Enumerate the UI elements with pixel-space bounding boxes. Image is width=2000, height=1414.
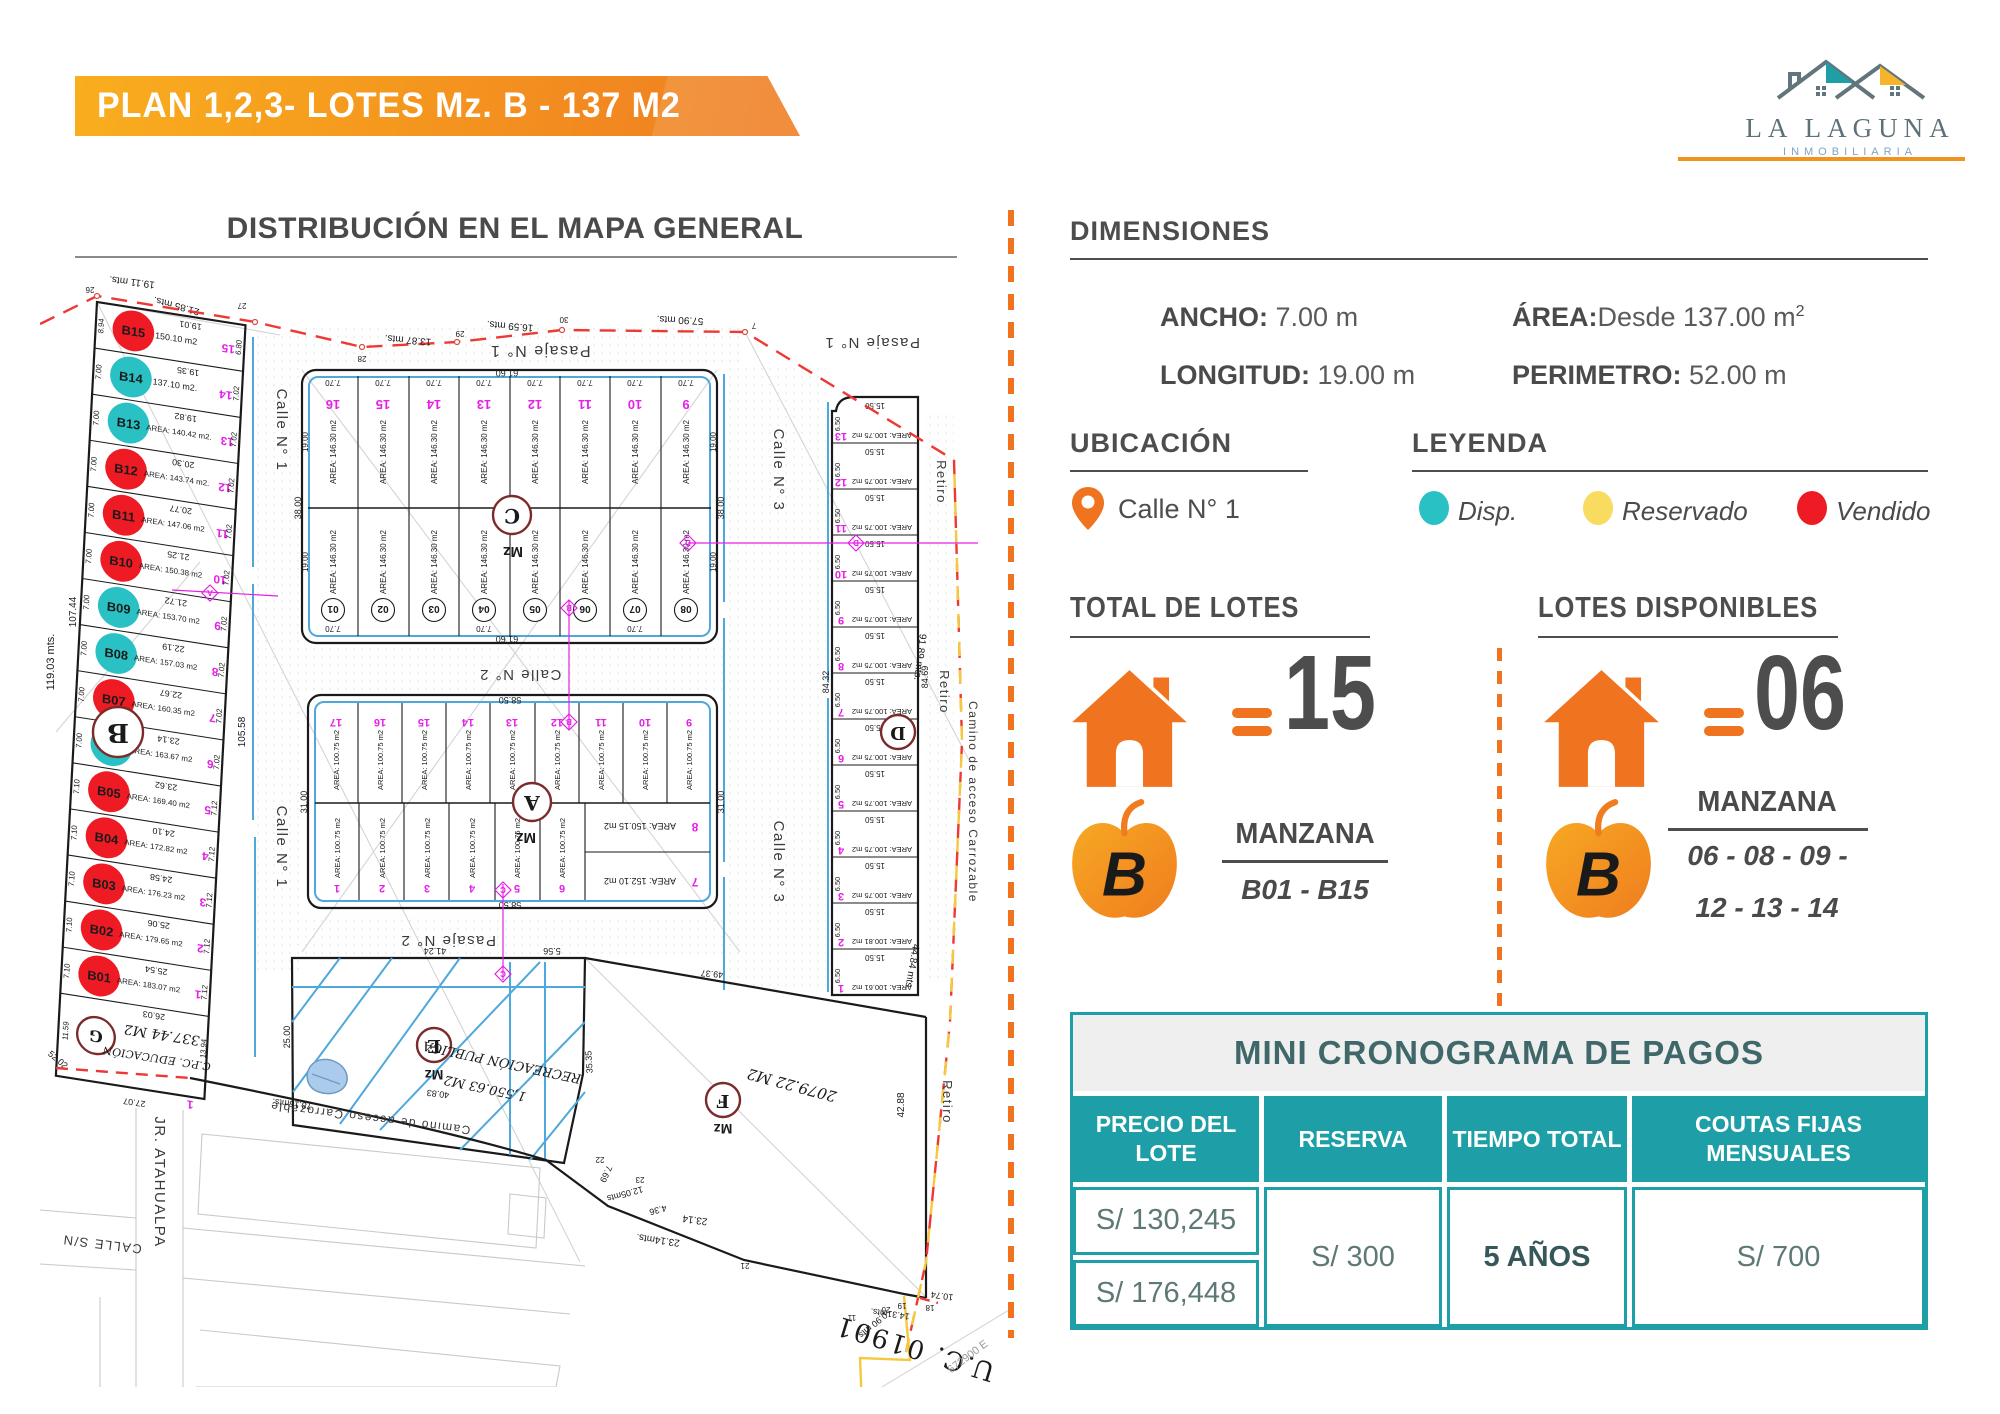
svg-text:19.82: 19.82 <box>174 411 197 424</box>
svg-text:14: 14 <box>461 716 474 728</box>
svg-text:AREA: 100.75 m2: AREA: 100.75 m2 <box>852 431 912 440</box>
svg-text:7.70: 7.70 <box>627 624 643 633</box>
svg-text:19.00: 19.00 <box>301 431 310 452</box>
svg-text:12: 12 <box>528 397 542 412</box>
svg-text:6.50: 6.50 <box>833 417 842 432</box>
svg-text:Calle N° 3: Calle N° 3 <box>770 429 787 512</box>
svg-text:3: 3 <box>424 882 430 894</box>
svg-text:6.50: 6.50 <box>833 693 842 708</box>
ubicacion-value: Calle N° 1 <box>1118 494 1240 525</box>
svg-text:Calle N° 1: Calle N° 1 <box>273 389 290 472</box>
svg-text:26.03: 26.03 <box>142 1009 165 1022</box>
reservado-dot <box>1582 490 1614 526</box>
svg-text:10: 10 <box>628 397 642 412</box>
svg-text:7.02: 7.02 <box>231 385 241 401</box>
lot-row: B13AREA: 140.42 m2.19.82137.007.02 <box>91 397 240 460</box>
reserva-value: S/ 300 <box>1264 1187 1442 1327</box>
svg-text:61.60: 61.60 <box>496 634 519 644</box>
svg-text:AREA: 100.75 m2: AREA: 100.75 m2 <box>852 569 912 578</box>
lot-row: B04AREA: 172.82 m224.1047.107.12 <box>69 812 218 875</box>
svg-text:Mz: Mz <box>516 829 536 846</box>
page-title: PLAN 1,2,3- LOTES Mz. B - 137 M2 <box>97 86 681 126</box>
svg-text:01: 01 <box>327 603 339 614</box>
svg-text:6.50: 6.50 <box>833 509 842 524</box>
svg-text:49.37: 49.37 <box>700 968 723 980</box>
svg-text:5: 5 <box>514 882 520 894</box>
svg-text:AREA: 169.40 m2: AREA: 169.40 m2 <box>126 792 190 811</box>
svg-text:7.70: 7.70 <box>476 378 492 387</box>
vendido-dot <box>1796 490 1828 526</box>
dim-label: 119.03 mts. <box>45 634 57 691</box>
svg-text:AREA: 146.30 m2: AREA: 146.30 m2 <box>329 419 338 484</box>
house-icon <box>1540 654 1665 804</box>
d-row: 15.508AREA: 100.75 m26.50 <box>833 631 912 672</box>
svg-text:08: 08 <box>680 603 692 614</box>
manzana-right-label: MANZANA <box>1658 786 1877 819</box>
svg-text:27: 27 <box>237 301 246 310</box>
svg-text:22.67: 22.67 <box>160 687 183 700</box>
ubicacion-heading: UBICACIÓN <box>1070 428 1232 459</box>
svg-text:AREA: 146.30 m2: AREA: 146.30 m2 <box>682 419 691 484</box>
leyenda-heading: LEYENDA <box>1412 428 1548 459</box>
svg-text:7.70: 7.70 <box>627 378 643 387</box>
svg-text:23.14mts.: 23.14mts. <box>636 1231 681 1248</box>
svg-text:17: 17 <box>330 716 342 728</box>
svg-text:31.00: 31.00 <box>299 791 309 814</box>
d-row: 15.507AREA: 100.75 m26.50 <box>833 677 912 718</box>
svg-text:35.35: 35.35 <box>583 1050 594 1073</box>
svg-text:7.00: 7.00 <box>82 594 92 611</box>
svg-text:16: 16 <box>326 397 340 412</box>
logo-underline <box>1678 157 1965 161</box>
cronograma-title: MINI CRONOGRAMA DE PAGOS <box>1073 1015 1925 1091</box>
precio-2: S/ 176,448 <box>1073 1260 1259 1328</box>
svg-text:7.00: 7.00 <box>84 547 94 564</box>
svg-text:38.00: 38.00 <box>293 497 303 520</box>
svg-text:13: 13 <box>477 397 491 412</box>
lotes-disponibles-heading: LOTES DISPONIBLES <box>1538 592 1818 625</box>
lot-row: B12AREA: 143.74 m2.20.30127.007.02 <box>88 443 237 506</box>
svg-text:21: 21 <box>740 1261 749 1270</box>
area-spec: ÁREA:Desde 137.00 m2 <box>1512 302 1805 333</box>
house-icon <box>1068 654 1193 804</box>
svg-text:2: 2 <box>379 882 385 894</box>
svg-text:AREA: 100.75 m2: AREA: 100.75 m2 <box>852 523 912 532</box>
svg-text:7.12: 7.12 <box>207 846 217 862</box>
svg-text:15.50: 15.50 <box>864 677 885 686</box>
area-value: Desde 137.00 m <box>1598 302 1796 332</box>
svg-text:12.05mts: 12.05mts <box>605 1184 644 1203</box>
dimensiones-underline <box>1070 258 1928 260</box>
svg-text:15.50: 15.50 <box>864 447 885 456</box>
cronograma-table: MINI CRONOGRAMA DE PAGOS PRECIO DEL LOTE… <box>1070 1012 1928 1330</box>
svg-text:7: 7 <box>751 321 756 330</box>
svg-text:20.30: 20.30 <box>172 457 195 470</box>
svg-text:21.72: 21.72 <box>164 595 187 608</box>
precio-1: S/ 130,245 <box>1073 1187 1259 1255</box>
svg-text:AREA: 146.30 m2: AREA: 146.30 m2 <box>430 419 439 484</box>
svg-text:Mz: Mz <box>425 1067 444 1083</box>
svg-text:23: 23 <box>635 1175 644 1184</box>
svg-text:15.50: 15.50 <box>864 861 885 870</box>
houses-logo-icon <box>1750 48 1950 106</box>
svg-text:21.25: 21.25 <box>167 549 190 562</box>
svg-text:15.50: 15.50 <box>864 493 885 502</box>
d-row: 15.5011AREA: 100.75 m26.50 <box>833 493 912 534</box>
svg-text:AREA: 150.38 m2: AREA: 150.38 m2 <box>139 561 203 580</box>
svg-text:AREA: 176.23 m2: AREA: 176.23 m2 <box>122 884 186 903</box>
svg-text:18: 18 <box>925 1303 934 1312</box>
svg-text:20: 20 <box>881 1305 890 1314</box>
svg-text:AREA: 146.30 m2: AREA: 146.30 m2 <box>480 529 489 594</box>
svg-text:15.50: 15.50 <box>864 401 885 410</box>
svg-text:8.94: 8.94 <box>96 317 106 334</box>
svg-text:25.54: 25.54 <box>145 964 168 977</box>
svg-text:1: 1 <box>186 1097 194 1111</box>
d-row: 15.504AREA: 100.75 m26.50 <box>833 815 912 856</box>
svg-text:D: D <box>890 722 906 743</box>
svg-text:15.50: 15.50 <box>864 585 885 594</box>
d-row: 15.505AREA: 100.75 m26.50 <box>833 769 912 810</box>
company-logo: LA LAGUNA INMOBILIARIA <box>1735 48 1965 158</box>
d-row: 15.501AREA: 100.61 m26.50 <box>833 953 912 994</box>
disponible-dot <box>1418 490 1450 526</box>
svg-text:AREA: 100.75 m2: AREA: 100.75 m2 <box>553 730 562 790</box>
svg-text:9: 9 <box>682 397 689 412</box>
map-section-title: DISTRIBUCIÓN EN EL MAPA GENERAL <box>75 212 955 246</box>
d-row: 15.5012AREA: 100.75 m26.50 <box>833 447 912 488</box>
svg-text:19.00: 19.00 <box>301 551 310 572</box>
svg-text:AREA: 183.07 m2: AREA: 183.07 m2 <box>117 976 181 995</box>
svg-text:20.77: 20.77 <box>169 503 192 516</box>
svg-text:6.50: 6.50 <box>833 555 842 570</box>
svg-text:AREA: 143.74 m2.: AREA: 143.74 m2. <box>144 469 210 488</box>
lot-row: B03AREA: 176.23 m224.5837.107.12 <box>66 858 215 921</box>
equals-sign <box>1232 700 1272 744</box>
svg-text:AREA: 100.75 m2: AREA: 100.75 m2 <box>464 730 473 790</box>
totals-divider <box>1497 648 1502 1040</box>
svg-text:6.50: 6.50 <box>833 831 842 846</box>
d-row: 15.502AREA: 100.81 m26.50 <box>833 907 912 948</box>
manzana-right-line1: 06 - 08 - 09 - <box>1640 840 1895 872</box>
svg-text:AREA: 146.30 m2: AREA: 146.30 m2 <box>531 419 540 484</box>
svg-text:6.50: 6.50 <box>833 785 842 800</box>
apple-b-icon: B <box>1062 798 1187 933</box>
mz-a-block: 17 16 15 14 13 12 11 10 9 AREA: 100.75 m… <box>299 695 726 910</box>
svg-text:C: C <box>504 504 520 528</box>
svg-text:11.59: 11.59 <box>61 1021 71 1041</box>
reservado-label: Reservado <box>1622 496 1748 527</box>
svg-text:26: 26 <box>85 285 94 294</box>
svg-text:AREA: 179.65 m2: AREA: 179.65 m2 <box>119 930 183 949</box>
svg-text:15.50: 15.50 <box>864 907 885 916</box>
lot-row: B11AREA: 147.06 m220.77117.007.02 <box>86 489 235 552</box>
svg-text:AREA: 100.75 m2: AREA: 100.75 m2 <box>597 730 606 790</box>
longitud-label: LONGITUD: <box>1160 360 1310 390</box>
svg-text:05: 05 <box>529 603 541 614</box>
ancho-value: 7.00 m <box>1276 302 1359 332</box>
svg-text:15.50: 15.50 <box>864 815 885 824</box>
svg-text:AREA: 146.30 m2: AREA: 146.30 m2 <box>531 529 540 594</box>
svg-text:AREA: 153.70 m2: AREA: 153.70 m2 <box>136 607 200 626</box>
svg-text:40.83: 40.83 <box>426 1088 450 1101</box>
svg-text:7.00: 7.00 <box>89 455 99 472</box>
svg-text:AREA: 100.75 m2: AREA: 100.75 m2 <box>423 818 432 878</box>
svg-text:29: 29 <box>455 329 464 338</box>
svg-text:AREA: 100.75 m2: AREA: 100.75 m2 <box>852 799 912 808</box>
svg-text:7.00: 7.00 <box>91 409 101 426</box>
svg-text:Mz: Mz <box>714 1121 733 1137</box>
svg-text:Calle N° 1: Calle N° 1 <box>273 806 290 889</box>
general-map: 21.85 mts. B15150.10 m219.01158.946.80 B… <box>40 262 1010 1387</box>
svg-text:24.58: 24.58 <box>150 872 173 885</box>
svg-text:11: 11 <box>595 716 607 728</box>
svg-text:84.32: 84.32 <box>821 671 831 694</box>
lot-row: B01AREA: 183.07 m225.5417.107.12 <box>61 950 210 1013</box>
svg-text:Pasaje N° 1: Pasaje N° 1 <box>824 334 920 351</box>
svg-text:19: 19 <box>897 1301 906 1310</box>
svg-text:7.70: 7.70 <box>325 378 341 387</box>
svg-text:7.12: 7.12 <box>202 938 212 954</box>
area-sup: 2 <box>1796 303 1805 320</box>
title-banner: PLAN 1,2,3- LOTES Mz. B - 137 M2 <box>75 76 800 136</box>
section-divider <box>1008 210 1014 1338</box>
manzana-right-rule <box>1668 828 1868 831</box>
svg-text:04: 04 <box>478 603 490 614</box>
svg-text:AREA: 100.75 m2: AREA: 100.75 m2 <box>852 891 912 900</box>
svg-text:38.00: 38.00 <box>716 497 726 520</box>
svg-text:7.00: 7.00 <box>77 686 87 703</box>
svg-text:AREA: 146.30 m2: AREA: 146.30 m2 <box>631 419 640 484</box>
svg-text:6: 6 <box>559 882 565 894</box>
svg-text:57.90 mts.: 57.90 mts. <box>656 313 703 326</box>
svg-text:D: D <box>853 538 859 547</box>
total-lotes-value: 15 <box>1284 640 1376 746</box>
cuotas-value: S/ 700 <box>1632 1187 1925 1327</box>
svg-text:AREA: 147.06 m2: AREA: 147.06 m2 <box>141 515 205 534</box>
svg-text:150.10 m2: 150.10 m2 <box>155 330 198 346</box>
south-boundary: Camino de acceso Carrozable 78.15mts. 40… <box>56 1068 999 1387</box>
svg-text:AREA: 100.75 m2: AREA: 100.75 m2 <box>852 477 912 486</box>
svg-text:AREA: 100.75 m2: AREA: 100.75 m2 <box>852 845 912 854</box>
svg-text:B: B <box>1576 841 1621 910</box>
svg-text:137.10 m2.: 137.10 m2. <box>152 376 197 393</box>
svg-text:Retiro: Retiro <box>934 460 949 504</box>
svg-text:4: 4 <box>468 882 475 894</box>
pond <box>307 1059 347 1093</box>
svg-text:6.50: 6.50 <box>833 969 842 984</box>
svg-text:D: D <box>685 538 691 547</box>
svg-text:Pasaje N° 1: Pasaje N° 1 <box>489 342 590 359</box>
dimensiones-heading: DIMENSIONES <box>1070 216 1270 247</box>
lot-row: B05AREA: 169.40 m223.6257.107.12 <box>71 766 220 829</box>
svg-text:6.50: 6.50 <box>833 647 842 662</box>
svg-text:58.50: 58.50 <box>499 695 522 705</box>
g-parcel: G 337.44 M2 C.P.C. EDUCACIÓN 26.03 11.59… <box>58 996 213 1119</box>
svg-text:7.02: 7.02 <box>229 431 239 447</box>
svg-text:Camino de acceso Carrozable: Camino de acceso Carrozable <box>966 701 980 903</box>
svg-text:16: 16 <box>374 716 386 728</box>
svg-text:07: 07 <box>629 603 641 614</box>
svg-text:AREA: 100.75 m2: AREA: 100.75 m2 <box>508 730 517 790</box>
cronograma-body: S/ 130,245 S/ 176,448 S/ 300 5 AÑOS S/ 7… <box>1073 1182 1925 1327</box>
ancho-spec: ANCHO: 7.00 m <box>1160 302 1358 333</box>
svg-text:A: A <box>207 588 213 597</box>
dim-label: 105.58 <box>237 716 248 747</box>
manzana-left-range: B01 - B15 <box>1200 874 1410 906</box>
d-row: 15.5010AREA: 100.75 m26.50 <box>833 539 912 580</box>
svg-text:6.50: 6.50 <box>833 877 842 892</box>
ubicacion-underline <box>1070 470 1308 472</box>
svg-text:7.70: 7.70 <box>527 378 543 387</box>
svg-text:13.94: 13.94 <box>198 1038 208 1059</box>
svg-text:AREA: 146.30 m2: AREA: 146.30 m2 <box>581 529 590 594</box>
svg-text:03: 03 <box>428 603 440 614</box>
svg-text:7.12: 7.12 <box>204 892 214 908</box>
svg-text:AREA: 157.03 m2: AREA: 157.03 m2 <box>134 653 198 672</box>
svg-text:JR. ATAHUALPA: JR. ATAHUALPA <box>151 1116 168 1247</box>
col-tiempo: TIEMPO TOTAL <box>1447 1096 1627 1182</box>
svg-text:AREA: 100.75 m2: AREA: 100.75 m2 <box>333 818 342 878</box>
svg-text:10: 10 <box>639 716 651 728</box>
svg-text:06: 06 <box>579 603 591 614</box>
svg-text:337.44 M2: 337.44 M2 <box>124 1021 201 1049</box>
d-row: 15.5013AREA: 100.75 m26.50 <box>833 401 912 442</box>
svg-text:CALLE S/N: CALLE S/N <box>61 1232 142 1257</box>
svg-text:AREA: 100.75 m2: AREA: 100.75 m2 <box>685 730 694 790</box>
svg-text:11: 11 <box>578 397 592 412</box>
svg-text:23.14: 23.14 <box>157 733 180 746</box>
total-lotes-heading: TOTAL DE LOTES <box>1070 592 1299 625</box>
svg-text:1: 1 <box>334 882 340 894</box>
svg-text:AREA: 100.81 m2: AREA: 100.81 m2 <box>852 937 912 946</box>
leyenda-underline <box>1412 470 1928 472</box>
svg-text:13: 13 <box>506 716 518 728</box>
svg-text:6.50: 6.50 <box>833 463 842 478</box>
svg-text:7.70: 7.70 <box>577 378 593 387</box>
svg-text:28: 28 <box>357 354 366 363</box>
perimetro-label: PERIMETRO: <box>1512 360 1682 390</box>
longitud-value: 19.00 m <box>1318 360 1416 390</box>
svg-text:7.02: 7.02 <box>212 754 222 770</box>
dim-label: 107.44 <box>68 596 79 627</box>
svg-text:AREA: 146.30 m2: AREA: 146.30 m2 <box>631 529 640 594</box>
lot-row: B15150.10 m219.01158.946.80 <box>96 305 245 368</box>
svg-text:30: 30 <box>559 315 568 324</box>
svg-text:7.02: 7.02 <box>217 662 227 678</box>
svg-text:7.10: 7.10 <box>72 778 82 795</box>
svg-text:AREA: 140.42 m2.: AREA: 140.42 m2. <box>146 423 212 442</box>
location-pin-icon <box>1072 487 1104 531</box>
svg-text:Retiro: Retiro <box>940 1080 955 1124</box>
svg-text:15: 15 <box>376 397 390 412</box>
svg-text:7.00: 7.00 <box>86 501 96 518</box>
vendido-label: Vendido <box>1836 496 1930 527</box>
perimetro-spec: PERIMETRO: 52.00 m <box>1512 360 1787 391</box>
col-reserva: RESERVA <box>1264 1096 1442 1182</box>
svg-text:7.70: 7.70 <box>375 378 391 387</box>
manzana-left-label: MANZANA <box>1205 818 1405 851</box>
svg-text:7: 7 <box>691 875 698 889</box>
svg-text:22: 22 <box>595 1155 604 1164</box>
svg-text:AREA: 100.75 m2: AREA: 100.75 m2 <box>558 818 567 878</box>
svg-text:2079.22 M2: 2079.22 M2 <box>745 1064 839 1105</box>
svg-text:7.00: 7.00 <box>79 640 89 657</box>
svg-text:C: C <box>500 969 506 978</box>
svg-text:7.12: 7.12 <box>209 800 219 816</box>
perimetro-value: 52.00 m <box>1689 360 1787 390</box>
svg-text:02: 02 <box>377 603 389 614</box>
svg-text:31.00: 31.00 <box>716 791 726 814</box>
lot-row: B08AREA: 157.03 m222.1987.007.02 <box>78 628 227 691</box>
svg-text:23.14: 23.14 <box>681 1212 708 1226</box>
svg-text:22.19: 22.19 <box>162 641 185 654</box>
svg-text:14: 14 <box>426 397 441 412</box>
svg-text:61.60: 61.60 <box>496 368 519 378</box>
svg-text:1,550.63 M2: 1,550.63 M2 <box>443 1071 528 1103</box>
svg-text:7.02: 7.02 <box>219 616 229 632</box>
svg-text:25.00: 25.00 <box>282 1026 292 1049</box>
svg-text:42.88: 42.88 <box>896 1092 907 1117</box>
svg-text:7.10: 7.10 <box>64 916 74 933</box>
mz-d-block: 15.5013AREA: 100.75 m26.50 15.5012AREA: … <box>821 397 930 995</box>
mz-b-block: 21.85 mts. B15150.10 m219.01158.946.80 B… <box>55 285 251 1119</box>
map-title-underline <box>75 256 957 258</box>
svg-text:AREA: 100.75 m2: AREA: 100.75 m2 <box>468 818 477 878</box>
svg-text:7.02: 7.02 <box>222 570 232 586</box>
mz-b-marker: B <box>93 707 143 757</box>
d-row: 15.503AREA: 100.75 m26.50 <box>833 861 912 902</box>
svg-text:AREA: 100.75 m2: AREA: 100.75 m2 <box>852 615 912 624</box>
equals-sign <box>1704 700 1744 744</box>
svg-text:7.12: 7.12 <box>200 984 210 1000</box>
manzana-right-line2: 12 - 13 - 14 <box>1652 892 1882 924</box>
svg-text:AREA: 100.75 m2: AREA: 100.75 m2 <box>852 753 912 762</box>
svg-text:25.06: 25.06 <box>147 918 170 931</box>
svg-text:7.10: 7.10 <box>67 870 77 887</box>
svg-text:15.50: 15.50 <box>864 631 885 640</box>
svg-text:19.00: 19.00 <box>709 551 718 572</box>
lotes-disponibles-value: 06 <box>1754 640 1846 746</box>
svg-text:15: 15 <box>418 716 430 728</box>
svg-text:15.50: 15.50 <box>864 953 885 962</box>
svg-text:AREA: 146.30 m2: AREA: 146.30 m2 <box>379 419 388 484</box>
svg-text:19.35: 19.35 <box>177 365 200 378</box>
d-row: 15.509AREA: 100.75 m26.50 <box>833 585 912 626</box>
svg-text:AREA: 100.75 m2: AREA: 100.75 m2 <box>513 818 522 878</box>
svg-text:Retiro: Retiro <box>937 670 952 714</box>
svg-text:7.70: 7.70 <box>476 624 492 633</box>
svg-text:AREA: 146.30 m2: AREA: 146.30 m2 <box>480 419 489 484</box>
svg-text:24.10: 24.10 <box>152 826 175 839</box>
svg-text:AREA: 172.82 m2: AREA: 172.82 m2 <box>124 838 188 857</box>
svg-text:AREA: 100.75 m2: AREA: 100.75 m2 <box>332 730 341 790</box>
col-cuotas: COUTAS FIJAS MENSUALES <box>1632 1096 1925 1182</box>
svg-text:C: C <box>500 885 506 894</box>
svg-text:AREA: 146.30 m2: AREA: 146.30 m2 <box>581 419 590 484</box>
svg-text:B: B <box>1102 841 1147 910</box>
svg-text:19.00: 19.00 <box>709 431 718 452</box>
svg-text:AREA: 146.30 m2: AREA: 146.30 m2 <box>430 529 439 594</box>
svg-text:AREA: 150.15 m2: AREA: 150.15 m2 <box>604 821 676 831</box>
svg-text:Mz: Mz <box>503 543 523 560</box>
lot-row: B02AREA: 179.65 m225.0627.107.12 <box>64 904 213 967</box>
svg-text:AREA: 152.10 m2: AREA: 152.10 m2 <box>604 876 676 886</box>
svg-text:15.50: 15.50 <box>864 769 885 778</box>
longitud-spec: LONGITUD: 19.00 m <box>1160 360 1415 391</box>
svg-text:27.07: 27.07 <box>123 1096 146 1109</box>
svg-text:23.62: 23.62 <box>155 780 178 793</box>
